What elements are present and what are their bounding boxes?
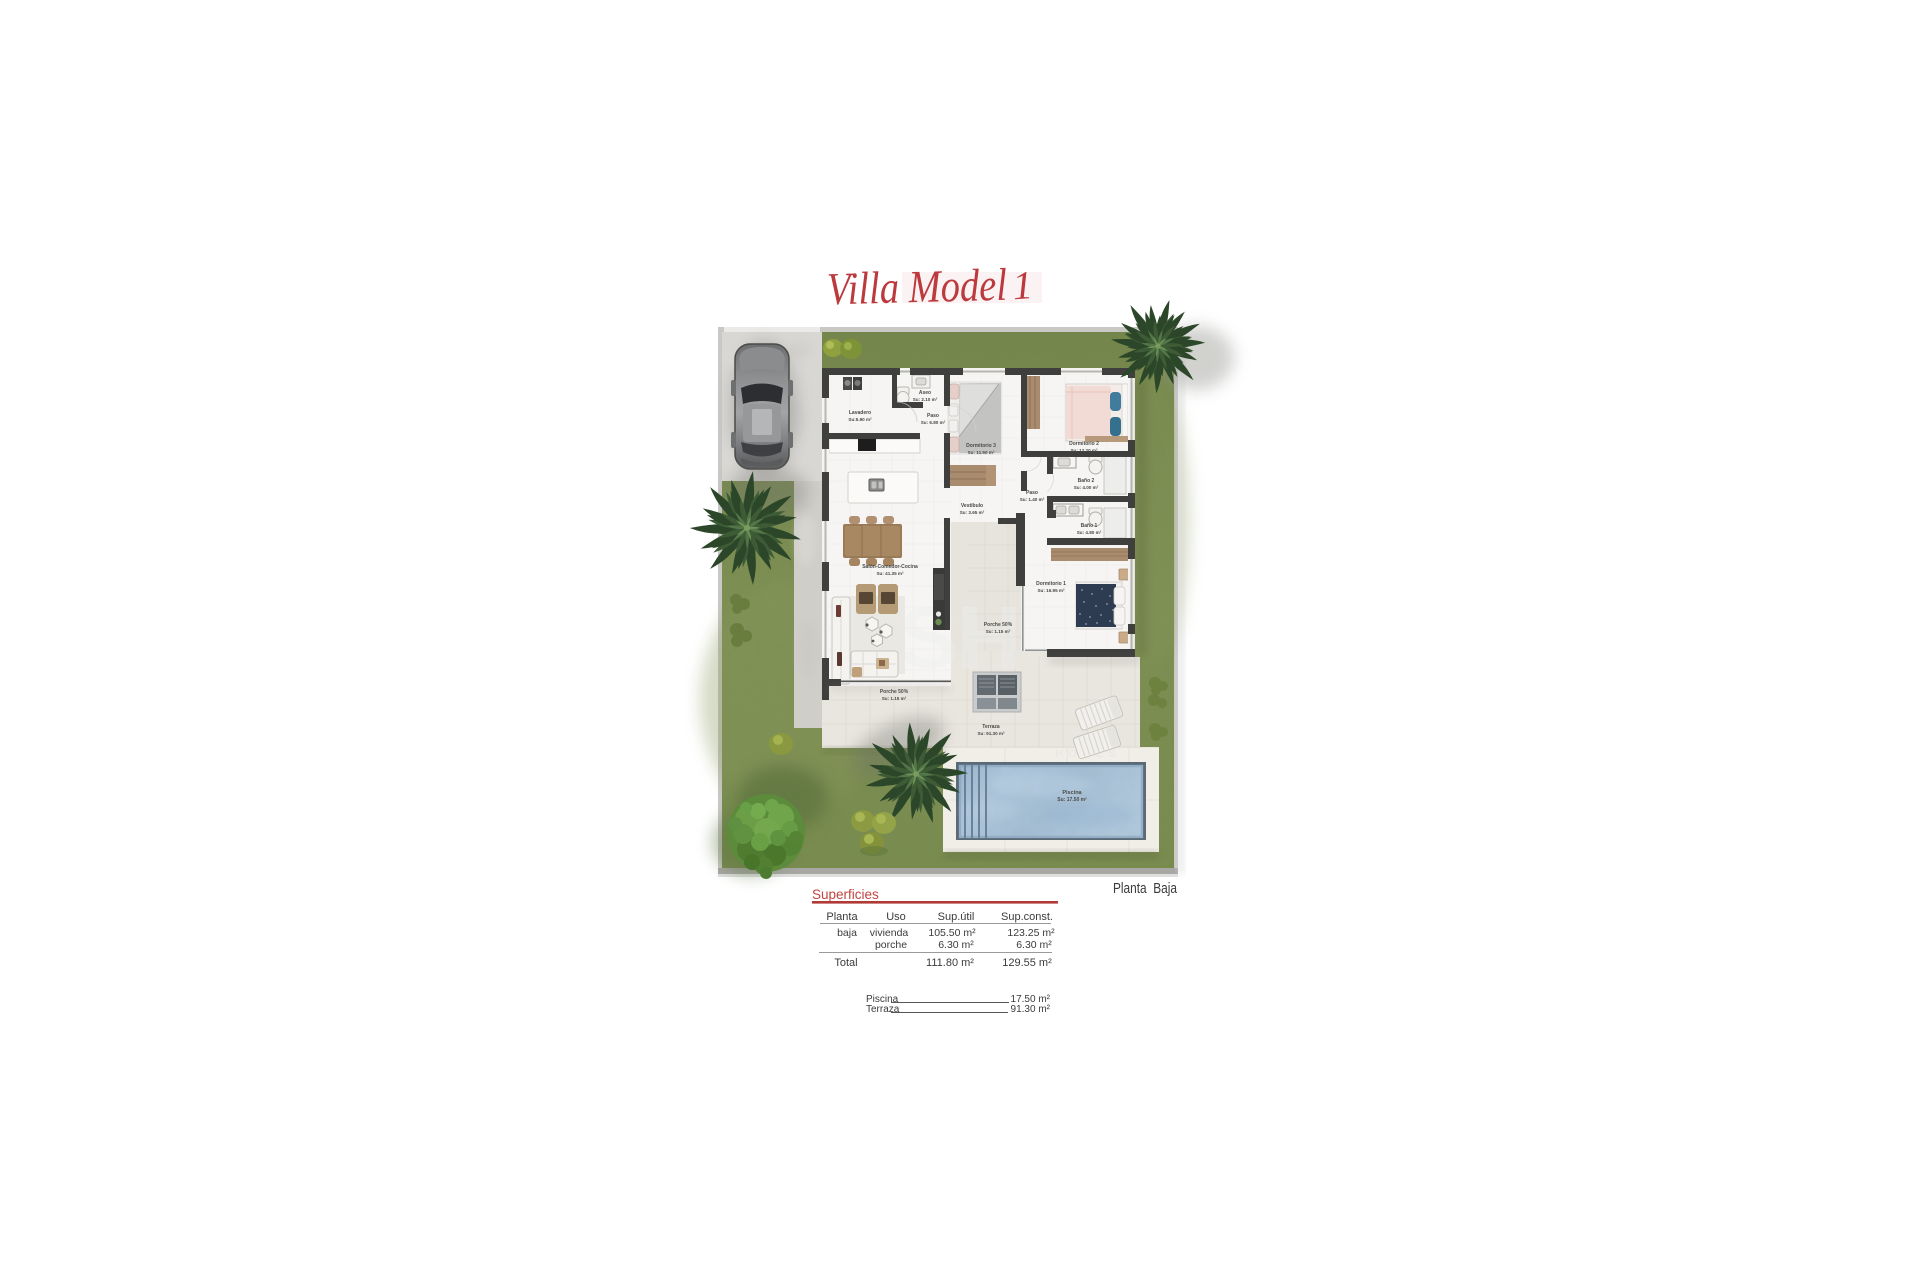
svg-text:105.50 m²: 105.50 m² bbox=[928, 927, 976, 939]
svg-text:Aseo: Aseo bbox=[919, 390, 931, 396]
svg-text:baja: baja bbox=[837, 927, 857, 939]
svg-text:Su: 17.50 m²: Su: 17.50 m² bbox=[1057, 797, 1087, 803]
svg-text:Paso: Paso bbox=[927, 413, 939, 419]
svg-text:Dormitorio 2: Dormitorio 2 bbox=[1069, 441, 1099, 447]
svg-text:6.30 m²: 6.30 m² bbox=[938, 939, 974, 951]
svg-text:129.55 m²: 129.55 m² bbox=[1002, 957, 1052, 969]
svg-text:Su: 1.15 m²: Su: 1.15 m² bbox=[882, 696, 907, 701]
svg-text:Planta Baja: Planta Baja bbox=[1113, 880, 1178, 897]
svg-text:Piscina: Piscina bbox=[1062, 790, 1082, 796]
svg-text:Dormitorio 1: Dormitorio 1 bbox=[1036, 581, 1066, 587]
svg-text:Lavadero: Lavadero bbox=[849, 410, 871, 416]
svg-text:Planta: Planta bbox=[826, 911, 858, 923]
svg-text:Su: 4.80 m²: Su: 4.80 m² bbox=[1077, 530, 1102, 535]
svg-text:Paso: Paso bbox=[1026, 490, 1038, 496]
svg-text:Terraza: Terraza bbox=[982, 724, 1000, 730]
svg-text:Su: 12.20 m²: Su: 12.20 m² bbox=[1070, 448, 1098, 453]
svg-text:Baño 2: Baño 2 bbox=[1078, 478, 1095, 484]
svg-text:Salón-Comedor-Cocina: Salón-Comedor-Cocina bbox=[862, 564, 918, 570]
svg-text:Porche 50%: Porche 50% bbox=[984, 622, 1013, 628]
svg-text:Su: 4.00 m²: Su: 4.00 m² bbox=[1074, 485, 1099, 490]
svg-text:Su:5.90 m²: Su:5.90 m² bbox=[848, 417, 872, 422]
svg-text:Su: 1.15 m²: Su: 1.15 m² bbox=[986, 629, 1011, 634]
svg-text:Total: Total bbox=[834, 957, 857, 969]
svg-text:Terraza: Terraza bbox=[866, 1004, 900, 1015]
svg-text:Villa Model: Villa Model bbox=[826, 259, 1007, 315]
svg-text:123.25 m²: 123.25 m² bbox=[1007, 927, 1055, 939]
svg-text:Su: 41.35 m²: Su: 41.35 m² bbox=[876, 571, 904, 576]
svg-text:91.30 m²: 91.30 m² bbox=[1011, 1004, 1051, 1015]
svg-text:Uso: Uso bbox=[886, 911, 906, 923]
svg-text:Su: 6.80 m²: Su: 6.80 m² bbox=[921, 420, 946, 425]
svg-text:vivienda: vivienda bbox=[870, 927, 909, 939]
svg-text:Su: 11.50 m²: Su: 11.50 m² bbox=[968, 450, 995, 455]
svg-text:1: 1 bbox=[1011, 262, 1034, 308]
svg-text:Su: 1.40 m²: Su: 1.40 m² bbox=[1020, 497, 1045, 502]
svg-text:Baño 1: Baño 1 bbox=[1081, 523, 1098, 529]
svg-text:Su: 91.30 m²: Su: 91.30 m² bbox=[977, 731, 1005, 736]
svg-text:111.80 m²: 111.80 m² bbox=[926, 957, 974, 969]
svg-text:Dormitorio 3: Dormitorio 3 bbox=[966, 443, 996, 449]
svg-text:6.30 m²: 6.30 m² bbox=[1016, 939, 1052, 951]
svg-text:Su: 2.10 m²: Su: 2.10 m² bbox=[913, 397, 938, 402]
svg-text:porche: porche bbox=[875, 939, 907, 951]
svg-text:Su: 16.95 m²: Su: 16.95 m² bbox=[1037, 588, 1065, 593]
svg-text:Vestíbulo: Vestíbulo bbox=[961, 503, 983, 509]
svg-text:Superficies: Superficies bbox=[812, 887, 879, 902]
svg-text:Sup.const.: Sup.const. bbox=[1001, 911, 1053, 923]
svg-text:Su: 3.65 m²: Su: 3.65 m² bbox=[960, 510, 985, 515]
svg-text:Sup.útil: Sup.útil bbox=[938, 911, 975, 923]
